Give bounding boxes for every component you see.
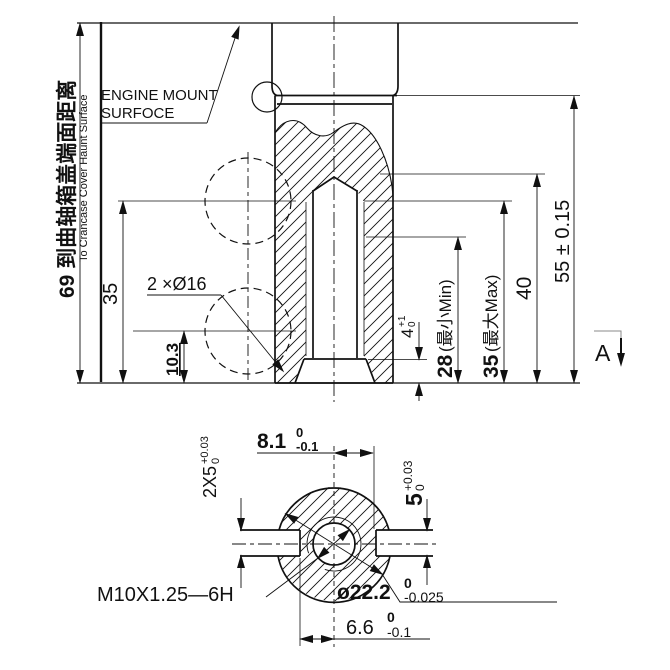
slot-right-clear: [376, 531, 430, 556]
dim-222-tol-dn: -0.025: [404, 589, 444, 605]
dim-81: 8.1: [257, 430, 287, 453]
dim-69-cn: 69 到曲轴箱盖端面距离: [55, 80, 79, 298]
front-view-arrowheads: [77, 24, 578, 396]
dim-2x5-group: 2X5 +0.03 0: [199, 436, 222, 498]
dim-66-tol-dn: -0.1: [387, 624, 411, 640]
dim-5-tol-dn: 0: [413, 484, 427, 491]
dim-28: 28: [434, 354, 457, 378]
dim-35: 35: [100, 283, 122, 305]
slot-left-clear: [240, 531, 300, 556]
technical-drawing-canvas: ENGINE MOUNT SURFOCE 69 到曲轴箱盖端面距离 To Cra…: [0, 0, 670, 670]
dim-66: 6.6: [346, 617, 374, 639]
dim-69-en: To Crancase Cover Haunt Surface: [78, 94, 90, 262]
thread-callout-m10: M10X1.25—6H: [97, 584, 234, 606]
dim-2x5: 2X5: [200, 466, 220, 498]
dim-4: 4: [398, 329, 417, 338]
dim-35max-group: 35 (最大Max): [480, 275, 503, 378]
front-view: [77, 16, 625, 402]
section-letter-a: A: [595, 340, 611, 366]
dim-40: 40: [513, 277, 536, 300]
dim-28-suffix: (最小Min): [436, 279, 455, 352]
dim-5-group: 5 +0.03 0: [401, 460, 427, 506]
dim-55: 55 ± 0.15: [552, 200, 574, 283]
dim-81-tol-dn: -0.1: [296, 439, 318, 454]
engine-mount-label-line2: SURFOCE: [101, 105, 174, 122]
dim-35max: 35: [480, 354, 503, 378]
engine-mount-label-line1: ENGINE MOUNT: [101, 87, 218, 104]
corner-detail-circle: [252, 82, 282, 112]
dim-81-tol-up: 0: [296, 425, 303, 440]
distance-callout: 69 到曲轴箱盖端面距离 To Crancase Cover Haunt Sur…: [55, 80, 90, 298]
dim-28min-group: 28 (最小Min): [434, 279, 457, 378]
dim-2x5-tol-dn: 0: [210, 458, 222, 464]
dim-66-tol-up: 0: [387, 609, 395, 625]
dim-4-tol-dn: 0: [407, 321, 418, 327]
dim-10-3: 10.3: [163, 343, 182, 376]
engineering-drawing-sheet: ENGINE MOUNT SURFOCE 69 到曲轴箱盖端面距离 To Cra…: [0, 0, 670, 670]
dim-4-group: 4 +1 0: [397, 315, 418, 338]
dim-5: 5: [401, 493, 427, 506]
holes-callout-2xd16: 2 ×Ø16: [147, 274, 207, 294]
thread-major-lines: [306, 202, 364, 356]
dim-35max-suffix: (最大Max): [482, 275, 501, 352]
dim-222: ø22.2: [337, 581, 391, 604]
